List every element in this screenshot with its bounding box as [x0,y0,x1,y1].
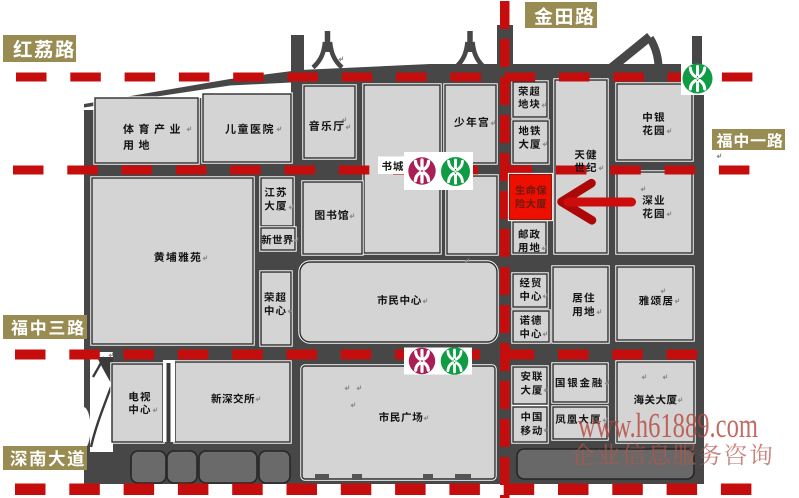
svg-text:www.h61889.com: www.h61889.com [578,406,758,445]
